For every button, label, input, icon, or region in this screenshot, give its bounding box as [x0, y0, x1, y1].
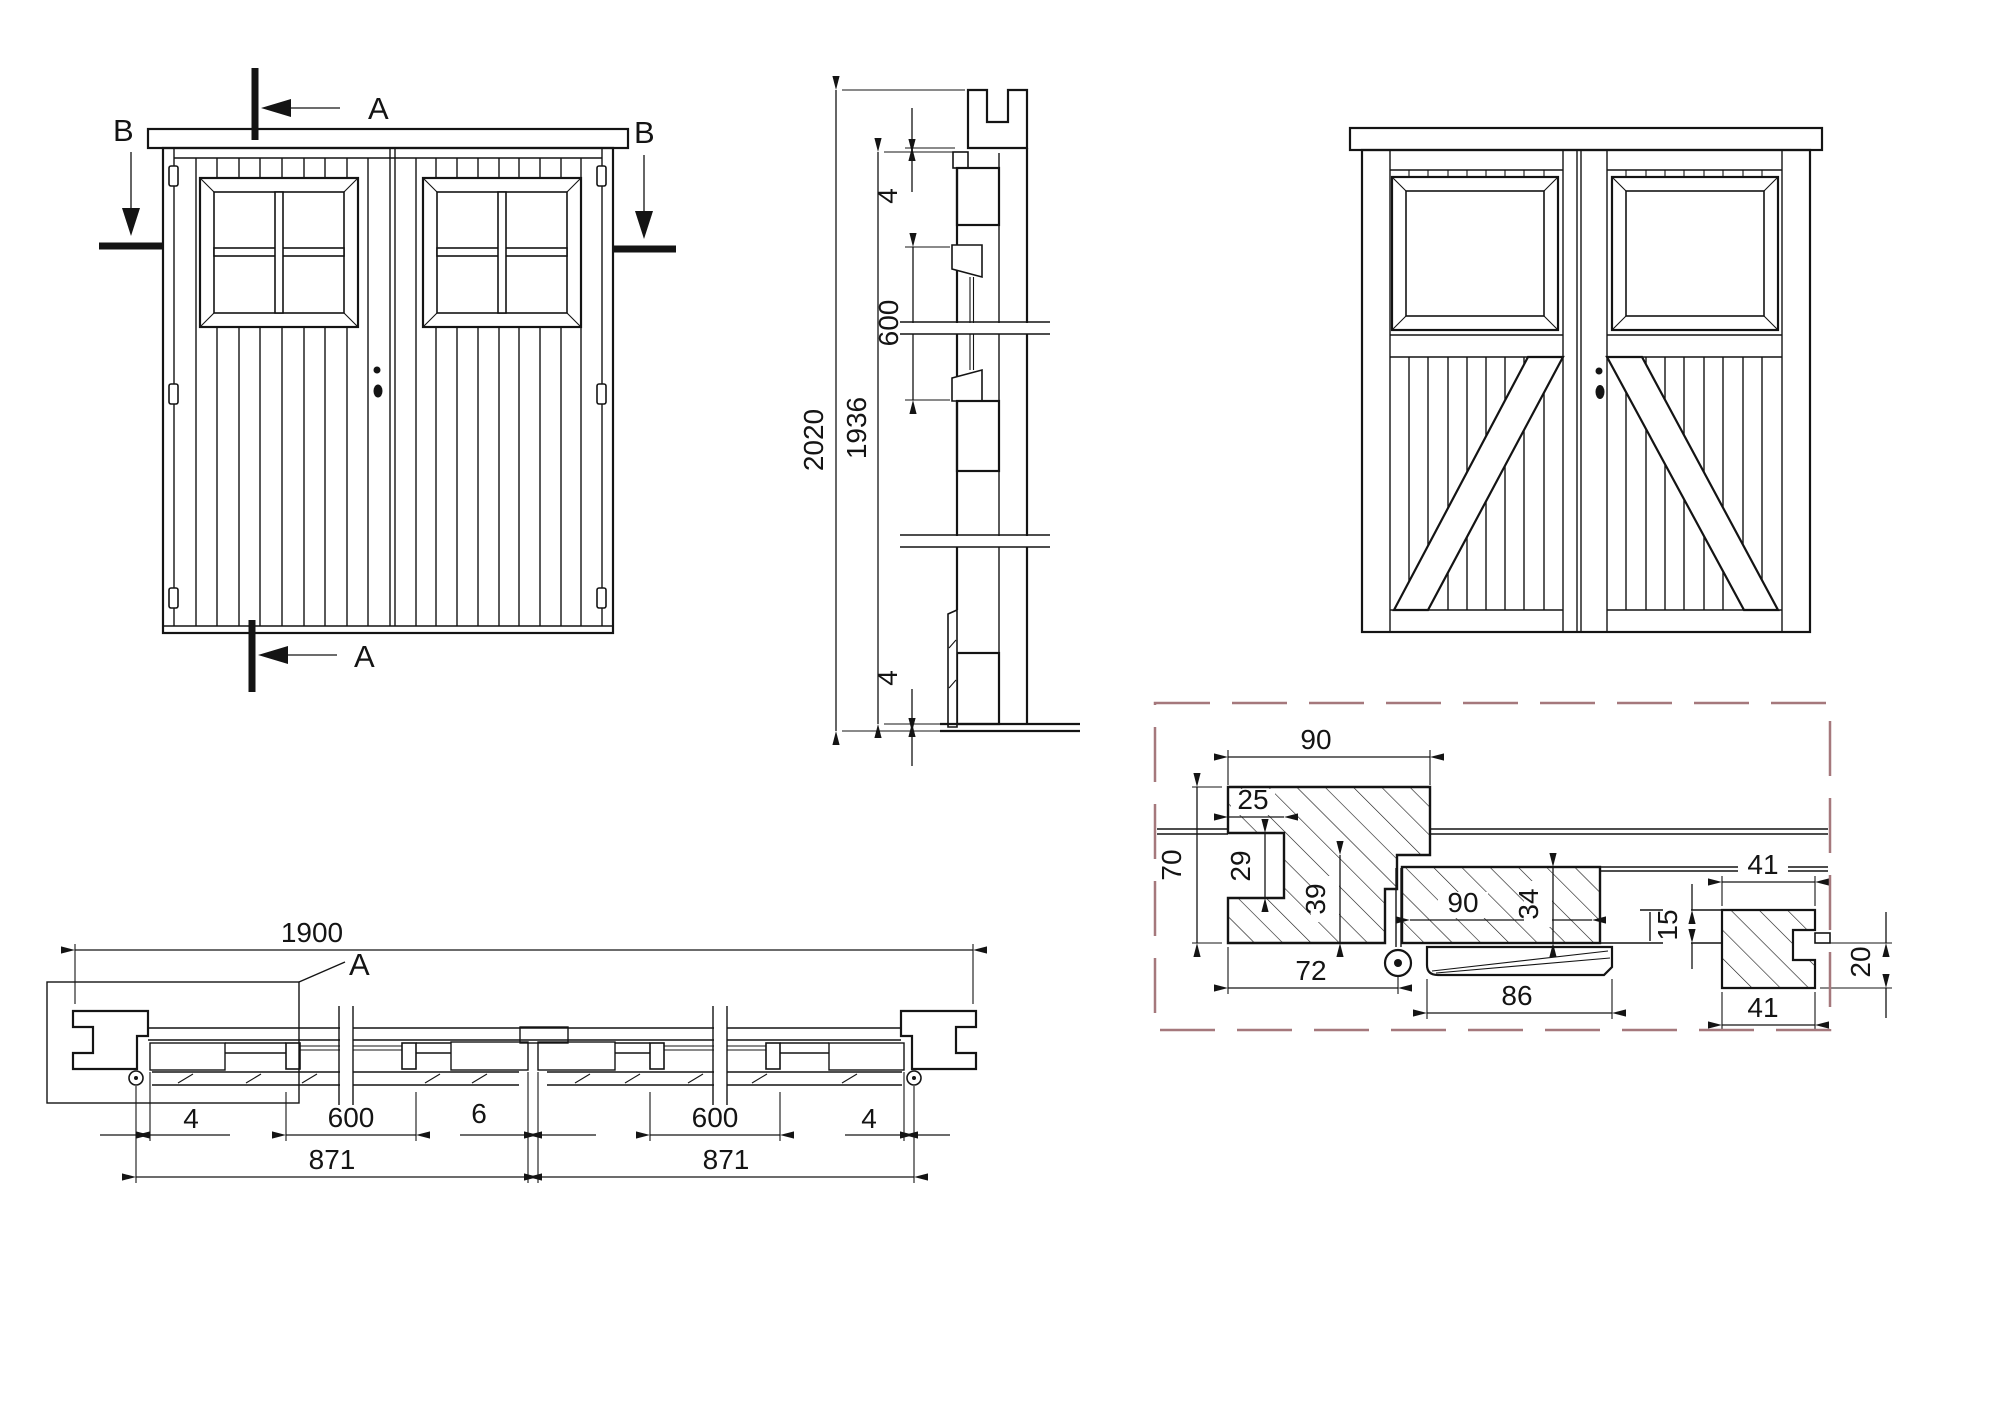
dim-hinge-gap-left: 4: [183, 1103, 199, 1134]
rear-left-diagonal-brace: [1394, 357, 1563, 610]
dim-leaf-width-left: 871: [309, 1144, 356, 1175]
front-head-cap: [148, 129, 628, 148]
rear-door-handle: [1596, 368, 1605, 400]
section-arrow-icon: [635, 211, 653, 239]
dim-frame-face-to-hinge: 72: [1295, 955, 1326, 986]
left-meeting-stile-section: [451, 1042, 528, 1070]
dim-rebate-depth: 39: [1300, 883, 1331, 914]
dim-top-gap: 4: [872, 188, 903, 204]
dim-weatherboard-width: 86: [1501, 980, 1532, 1011]
dim-overall-height: 2020: [798, 409, 829, 471]
vertical-section-profile: [940, 90, 1080, 731]
section-marker-a-bottom: A: [252, 620, 375, 692]
rear-right-diagonal-brace: [1607, 357, 1778, 610]
dim-window-width-left: 600: [328, 1102, 375, 1133]
dim-bottom-gap: 4: [872, 670, 903, 686]
dim-leaf-height: 1936: [841, 397, 872, 459]
leaf-mid-rail-section: [957, 401, 999, 471]
dim-window-height: 600: [873, 300, 904, 347]
dim-overall-width: 1900: [281, 917, 343, 948]
keyhole-icon: [1596, 385, 1605, 399]
leaf-top-rail-section: [957, 168, 999, 225]
dim-groove-height: 29: [1225, 850, 1256, 881]
technical-drawing-page: A A B B: [0, 0, 2000, 1414]
keyhole-icon: [374, 385, 383, 398]
front-door-handle: [374, 367, 383, 398]
weatherboard-strips: [152, 1072, 902, 1085]
handle-dot-icon: [374, 367, 381, 374]
rear-right-window: [1612, 177, 1778, 330]
front-elevation-view: A A B B: [99, 68, 676, 692]
dim-cladding-board-bottom: 41: [1747, 992, 1778, 1023]
leaf-bottom-rail-section: [957, 653, 999, 724]
door-drawing-canvas: A A B B: [0, 0, 2000, 1414]
rear-head-cap: [1350, 128, 1822, 150]
dim-plank-thickness: 15: [1652, 909, 1683, 940]
leaf-plank-strips: [225, 1043, 829, 1053]
dim-frame-width: 70: [1156, 849, 1187, 880]
detail-leaf-stile: [1402, 867, 1600, 943]
section-arrow-icon: [122, 208, 140, 236]
detail-a-view: 90 70 25 29 39 90 34 41 15: [1155, 703, 1892, 1030]
leaf-top-lip: [953, 152, 968, 168]
horizontal-section-view: A 1900 4 600 6 600 4 871 871: [47, 917, 976, 1183]
dim-cladding-thickness: 20: [1845, 946, 1876, 977]
handle-dot-icon: [1596, 368, 1603, 375]
front-right-window-vbar: [498, 192, 506, 313]
dim-window-width-right: 600: [692, 1102, 739, 1133]
vertical-section-view: 2020 1936 4 600 4: [798, 90, 1080, 766]
cladding-tongue: [1815, 933, 1830, 943]
dim-groove-width: 25: [1237, 784, 1268, 815]
left-hinge-stile-section: [150, 1043, 225, 1070]
detail-cladding-board: [1722, 910, 1815, 988]
dim-center-gap: 6: [471, 1098, 487, 1129]
section-arrow-icon: [258, 646, 288, 664]
hsection-head-lines: [148, 1028, 901, 1040]
weatherboard-section: [948, 610, 957, 727]
weatherboard-slope-ticks: [178, 1074, 857, 1083]
vertical-section-dimensions: 2020 1936 4 600 4: [798, 90, 965, 766]
front-left-window: [200, 178, 358, 327]
right-meeting-stile-section: [538, 1042, 615, 1070]
hsection-right-frame-profile: [901, 1011, 976, 1069]
horizontal-section-dimensions: 1900 4 600 6 600 4 871 871: [75, 917, 973, 1183]
threshold-lines: [940, 724, 1080, 731]
front-left-window-vbar: [275, 192, 283, 313]
dim-leaf-width-right: 871: [703, 1144, 750, 1175]
section-label-b-left: B: [113, 113, 134, 148]
hsection-hinges: [129, 1071, 921, 1085]
section-label-a-top: A: [368, 91, 389, 126]
break-marks: [339, 1006, 727, 1105]
window-glass-lines: [286, 1046, 780, 1050]
detail-callout-label: A: [349, 947, 370, 982]
dim-cladding-board-top: 41: [1747, 849, 1778, 880]
dim-stile-width: 90: [1447, 887, 1478, 918]
rear-left-window: [1392, 177, 1558, 330]
detail-a-callout: A: [47, 947, 370, 1103]
front-right-window: [423, 178, 581, 327]
right-hinge-stile-section: [829, 1043, 904, 1070]
frame-head-section: [968, 90, 1027, 148]
section-arrow-icon: [261, 99, 291, 117]
dim-leaf-thickness: 34: [1513, 888, 1544, 919]
section-label-a-bottom: A: [354, 639, 375, 674]
section-label-b-right: B: [634, 115, 655, 150]
rear-elevation-view: [1350, 128, 1822, 632]
dim-hinge-gap-right: 4: [861, 1103, 877, 1134]
dim-frame-depth: 90: [1300, 724, 1331, 755]
glazing-bead-blocks: [286, 1043, 780, 1069]
hsection-left-frame-profile: [73, 1011, 148, 1069]
